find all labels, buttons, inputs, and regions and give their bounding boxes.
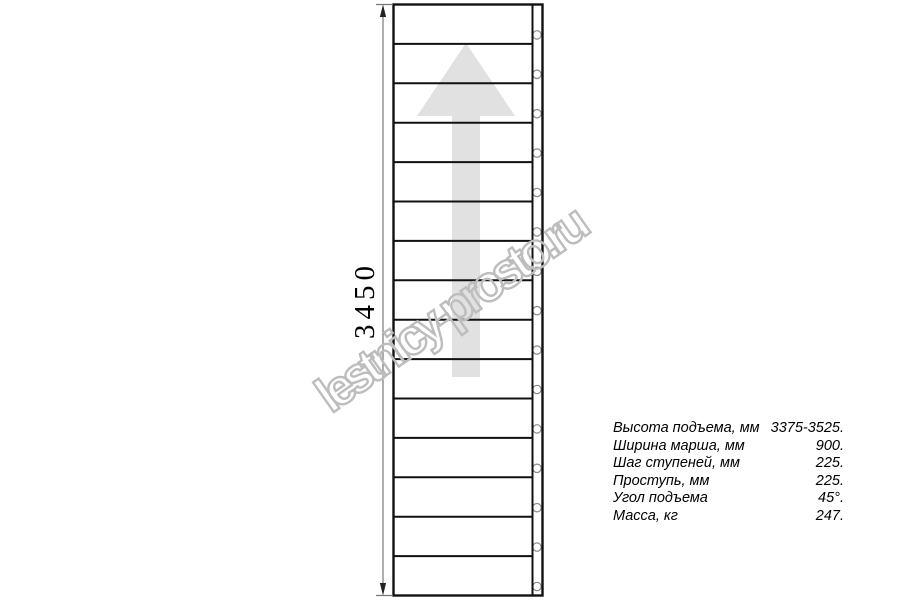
bolt-circle-icon — [533, 385, 541, 393]
spec-value: 247. — [816, 508, 844, 526]
bolt-circle-icon — [533, 543, 541, 551]
spec-row-mass: Масса, кг 247. — [613, 508, 844, 526]
spec-row-height: Высота подъема, мм 3375-3525. — [613, 420, 844, 438]
dimension-label: 3450 — [349, 261, 381, 339]
spec-value: 3375-3525. — [771, 420, 844, 438]
spec-value: 900. — [816, 438, 844, 456]
bolt-circle-icon — [533, 425, 541, 433]
spec-row-tread: Проступь, мм 225. — [613, 473, 844, 491]
dimension-arrow-down-icon — [380, 583, 386, 596]
spec-row-angle: Угол подъема 45°. — [613, 490, 844, 508]
bolt-circle-icon — [533, 464, 541, 472]
spec-label: Проступь, мм — [613, 473, 709, 491]
specs-table: Высота подъема, мм 3375-3525. Ширина мар… — [613, 420, 844, 526]
spec-label: Угол подъема — [613, 490, 708, 508]
bolt-circle-icon — [533, 346, 541, 354]
spec-label: Шаг ступеней, мм — [613, 455, 740, 473]
bolt-circle-icon — [533, 31, 541, 39]
bolt-circle-icon — [533, 70, 541, 78]
spec-row-width: Ширина марша, мм 900. — [613, 438, 844, 456]
spec-label: Масса, кг — [613, 508, 678, 526]
bolt-circle-icon — [533, 149, 541, 157]
spec-row-step: Шаг ступеней, мм 225. — [613, 455, 844, 473]
spec-value: 225. — [816, 473, 844, 491]
bolt-circle-icon — [533, 110, 541, 118]
dimension-arrow-up-icon — [380, 5, 386, 18]
spec-label: Высота подъема, мм — [613, 420, 760, 438]
spec-value: 45°. — [818, 490, 844, 508]
spec-label: Ширина марша, мм — [613, 438, 745, 456]
bolt-circle-icon — [533, 188, 541, 196]
spec-value: 225. — [816, 455, 844, 473]
bolt-circle-icon — [533, 307, 541, 315]
climb-direction-arrow-icon — [417, 43, 515, 377]
bolt-circle-icon — [533, 582, 541, 590]
bolt-circle-icon — [533, 267, 541, 275]
bolt-circle-icon — [533, 504, 541, 512]
bolt-circle-icon — [533, 228, 541, 236]
